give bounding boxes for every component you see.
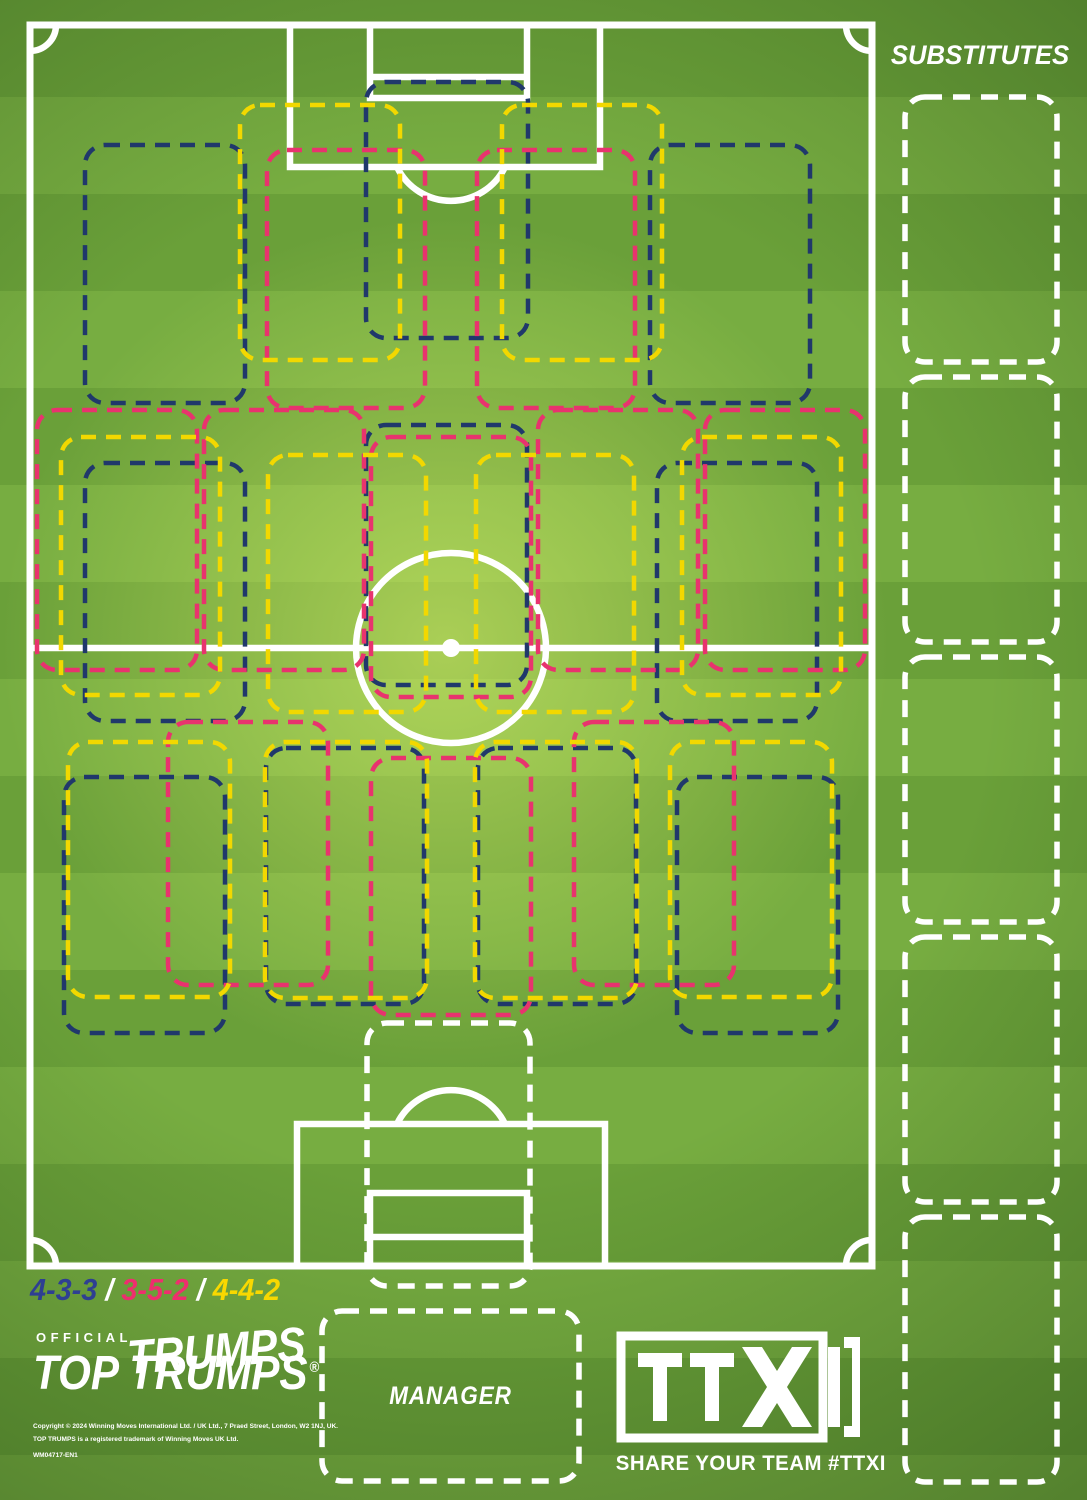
- ttxi-logo: [616, 1331, 862, 1443]
- slot-4-3-3-lw[interactable]: [85, 145, 245, 403]
- slot-3-5-2-rcm[interactable]: [538, 410, 698, 670]
- legend-separator: /: [189, 1272, 213, 1307]
- registered-mark: ®: [309, 1359, 319, 1376]
- substitute-slot-4[interactable]: [905, 937, 1057, 1202]
- slot-3-5-2-cb-center[interactable]: [371, 758, 531, 1015]
- slot-3-5-2-lcm[interactable]: [204, 410, 364, 670]
- formation-legend: 4-3-3 / 3-5-2 / 4-4-2: [30, 1272, 280, 1308]
- substitute-slot-2[interactable]: [905, 377, 1057, 642]
- penalty-arc-top: [397, 167, 505, 201]
- legend-separator: /: [97, 1272, 121, 1307]
- pitch-lines: [30, 25, 872, 1266]
- slot-4-3-3-lb[interactable]: [64, 777, 225, 1033]
- substitutes-title: SUBSTITUTES: [883, 40, 1077, 71]
- substitute-slot-5[interactable]: [905, 1217, 1057, 1482]
- slot-3-5-2-cm[interactable]: [371, 437, 531, 697]
- substitute-slot-1[interactable]: [905, 97, 1057, 362]
- slot-4-3-3-rcb[interactable]: [478, 748, 636, 1004]
- goal-area-top: [370, 25, 527, 98]
- center-spot: [442, 639, 460, 657]
- top-trumps-logo-text: TOP TRUMPS®: [33, 1346, 319, 1401]
- goal-area-bottom: [370, 1193, 527, 1266]
- playmat: SUBSTITUTES 4-3-3 / 3-5-2 / 4-4-2 OFFICI…: [0, 0, 1087, 1500]
- slot-4-3-3-rw[interactable]: [650, 145, 810, 403]
- slot-4-4-2-lcm[interactable]: [268, 455, 426, 712]
- slot-4-3-3-lcb[interactable]: [266, 748, 424, 1004]
- slot-3-5-2-cb-right[interactable]: [574, 722, 734, 985]
- slot-4-4-2-lb[interactable]: [68, 742, 230, 997]
- slot-4-4-2-lcb[interactable]: [265, 742, 427, 998]
- slot-goalkeeper[interactable]: [367, 1023, 530, 1286]
- legend-formation-4-4-2: 4-4-2: [213, 1272, 280, 1307]
- slot-4-3-3-rb[interactable]: [677, 777, 838, 1033]
- manager-slot-label: MANAGER: [335, 1311, 566, 1481]
- slot-4-4-2-rcb[interactable]: [475, 742, 637, 998]
- penalty-arc-bottom: [397, 1090, 505, 1124]
- slot-4-4-2-rcm[interactable]: [476, 455, 634, 712]
- product-code: WM04717-EN1: [33, 1452, 78, 1459]
- slot-4-4-2-st-left[interactable]: [240, 105, 400, 360]
- substitute-slot-3[interactable]: [905, 657, 1057, 922]
- legend-formation-3-5-2: 3-5-2: [121, 1272, 188, 1307]
- legend-formation-4-3-3: 4-3-3: [30, 1272, 97, 1307]
- official-label: OFFICIAL: [36, 1330, 132, 1345]
- slot-4-4-2-rb[interactable]: [670, 742, 832, 997]
- ttxi-tagline: SHARE YOUR TEAM #TTXI: [616, 1452, 862, 1476]
- slot-3-5-2-cb-left[interactable]: [168, 722, 328, 985]
